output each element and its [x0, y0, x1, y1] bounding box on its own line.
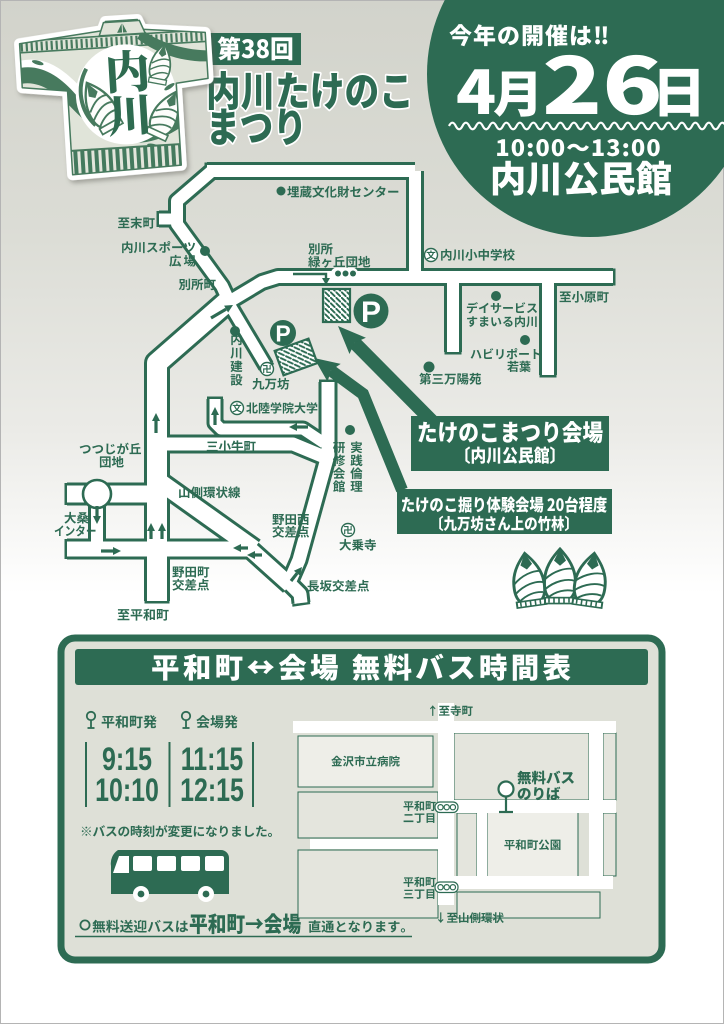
svg-text:12:15: 12:15: [180, 773, 244, 809]
svg-text:P: P: [275, 321, 290, 347]
svg-text:10:10: 10:10: [95, 773, 159, 809]
svg-text:P: P: [361, 296, 381, 329]
